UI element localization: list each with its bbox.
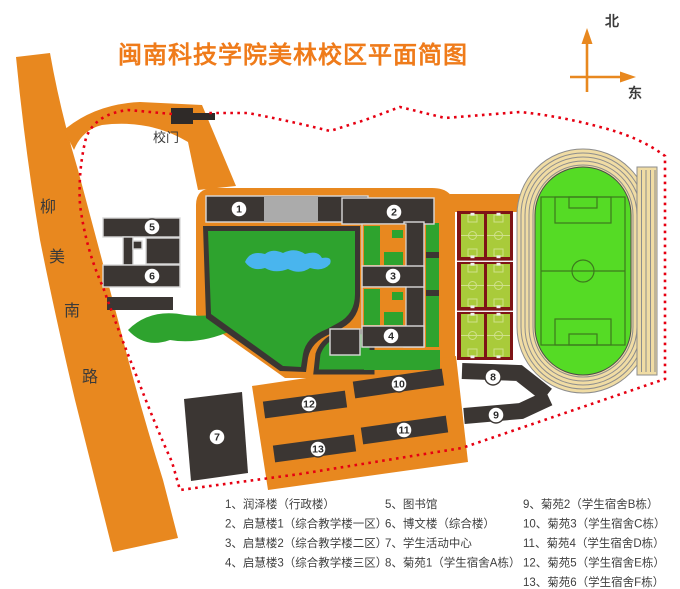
annex-building: [107, 297, 173, 310]
marker-11: 11: [396, 422, 412, 438]
stadium: [517, 149, 657, 393]
legend-item-10: 10、菊苑3（学生宿舍C栋）: [523, 517, 666, 531]
marker-7: 7: [209, 429, 225, 445]
road-char-lu: 路: [82, 368, 98, 386]
east-arrow: [570, 72, 636, 83]
legend-item-4: 4、启慧楼3（综合教学楼三区）: [225, 556, 387, 570]
legend-item-12: 12、菊苑5（学生宿舍E栋）: [523, 556, 665, 570]
legend-item-13: 13、菊苑6（学生宿舍F栋）: [523, 575, 664, 589]
legend-item-11: 11、菊苑4（学生宿舍D栋）: [523, 536, 665, 550]
comb-courtyard-lower: [362, 287, 406, 327]
svg-text:6: 6: [149, 271, 155, 283]
marker-12: 12: [301, 396, 317, 412]
main-gate-label: 校门: [153, 130, 179, 145]
svg-text:5: 5: [149, 222, 155, 234]
marker-13: 13: [310, 441, 326, 457]
svg-text:1: 1: [236, 204, 242, 216]
svg-text:2: 2: [391, 207, 397, 219]
legend-item-6: 6、博文楼（综合楼）: [385, 517, 495, 531]
legend-item-2: 2、启慧楼1（综合教学楼一区）: [225, 517, 387, 531]
marker-5: 5: [144, 219, 160, 235]
compass: 北 东: [570, 13, 642, 101]
legend-item-9: 9、菊苑2（学生宿舍B栋）: [523, 497, 658, 511]
campus-map-page: 闽南科技学院美林校区平面简图 北 东: [0, 0, 680, 589]
svg-text:13: 13: [312, 444, 324, 456]
svg-text:7: 7: [214, 432, 220, 444]
north-arrow: [582, 28, 593, 92]
svg-text:9: 9: [493, 410, 499, 422]
east-lawn-strip: [426, 223, 439, 347]
campus-map: 闽南科技学院美林校区平面简图 北 东: [0, 0, 680, 589]
south-lawn-strip: [364, 350, 440, 370]
road-char-liu: 柳: [40, 198, 56, 216]
basketball-courts: [457, 211, 513, 360]
marker-2: 2: [386, 204, 402, 220]
svg-text:11: 11: [398, 425, 409, 437]
legend-item-1: 1、润泽楼（行政楼）: [225, 497, 335, 511]
svg-text:4: 4: [388, 331, 394, 343]
comb-courtyard-upper: [362, 224, 406, 267]
marker-9: 9: [488, 407, 504, 423]
building-8-dorm-a: [462, 371, 547, 395]
marker-6: 6: [144, 268, 160, 284]
legend: 1、润泽楼（行政楼） 2、启慧楼1（综合教学楼一区） 3、启慧楼2（综合教学楼二…: [225, 497, 666, 589]
svg-text:8: 8: [490, 372, 496, 384]
building-5-library: [103, 218, 180, 265]
map-title: 闽南科技学院美林校区平面简图: [118, 41, 468, 69]
building-6-bowenlou: [103, 265, 180, 287]
road-char-mei: 美: [49, 248, 65, 266]
runzelou-gray-block: [264, 197, 318, 221]
legend-item-5: 5、图书馆: [385, 497, 437, 511]
marker-4: 4: [383, 328, 399, 344]
north-service-road: [450, 194, 520, 212]
svg-text:12: 12: [303, 399, 315, 411]
marker-1: 1: [231, 201, 247, 217]
legend-item-7: 7、学生活动中心: [385, 536, 472, 550]
legend-item-8: 8、菊苑1（学生宿舍A栋）: [385, 556, 520, 570]
marker-3: 3: [385, 268, 401, 284]
building-9-dorm-b: [464, 398, 549, 416]
svg-text:3: 3: [390, 271, 396, 283]
pavilion-building: [330, 329, 360, 355]
marker-10: 10: [391, 376, 407, 392]
road-char-nan: 南: [64, 302, 80, 320]
compass-east-label: 东: [628, 85, 642, 101]
svg-text:10: 10: [393, 379, 405, 391]
grandstand: [637, 167, 657, 375]
legend-item-3: 3、启慧楼2（综合教学楼二区）: [225, 536, 387, 550]
marker-8: 8: [485, 369, 501, 385]
compass-north-label: 北: [605, 13, 619, 29]
